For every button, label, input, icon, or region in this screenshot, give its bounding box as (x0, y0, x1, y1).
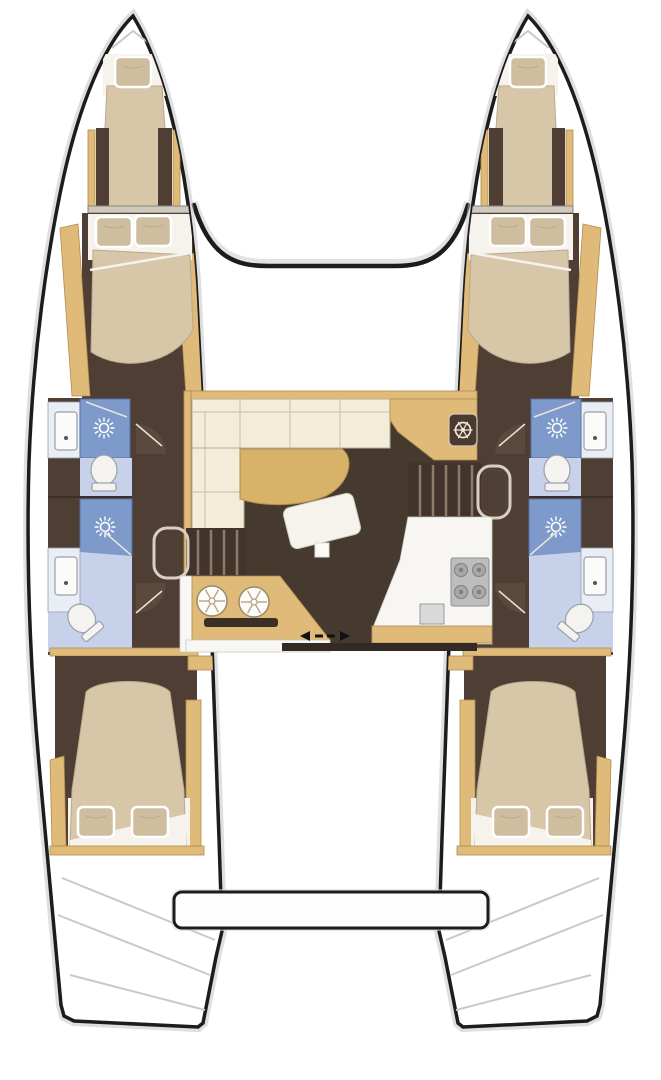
galley-sink-1 (197, 586, 227, 616)
saloon-aft-wall (282, 643, 477, 651)
floor-plan-canvas (0, 0, 661, 1080)
counter-sink (420, 604, 444, 624)
mast-post (315, 543, 329, 557)
catamaran-floor-plan (0, 0, 661, 1080)
saloon-front-wall (184, 391, 477, 399)
burner-4 (473, 586, 486, 599)
burner-2 (473, 564, 486, 577)
aft-counter (372, 626, 492, 643)
burner-3 (455, 586, 468, 599)
saloon (154, 391, 510, 652)
galley-sink-2 (239, 587, 269, 617)
swim-platform (171, 889, 491, 931)
oven-slot (204, 618, 278, 627)
burner-1 (455, 564, 468, 577)
